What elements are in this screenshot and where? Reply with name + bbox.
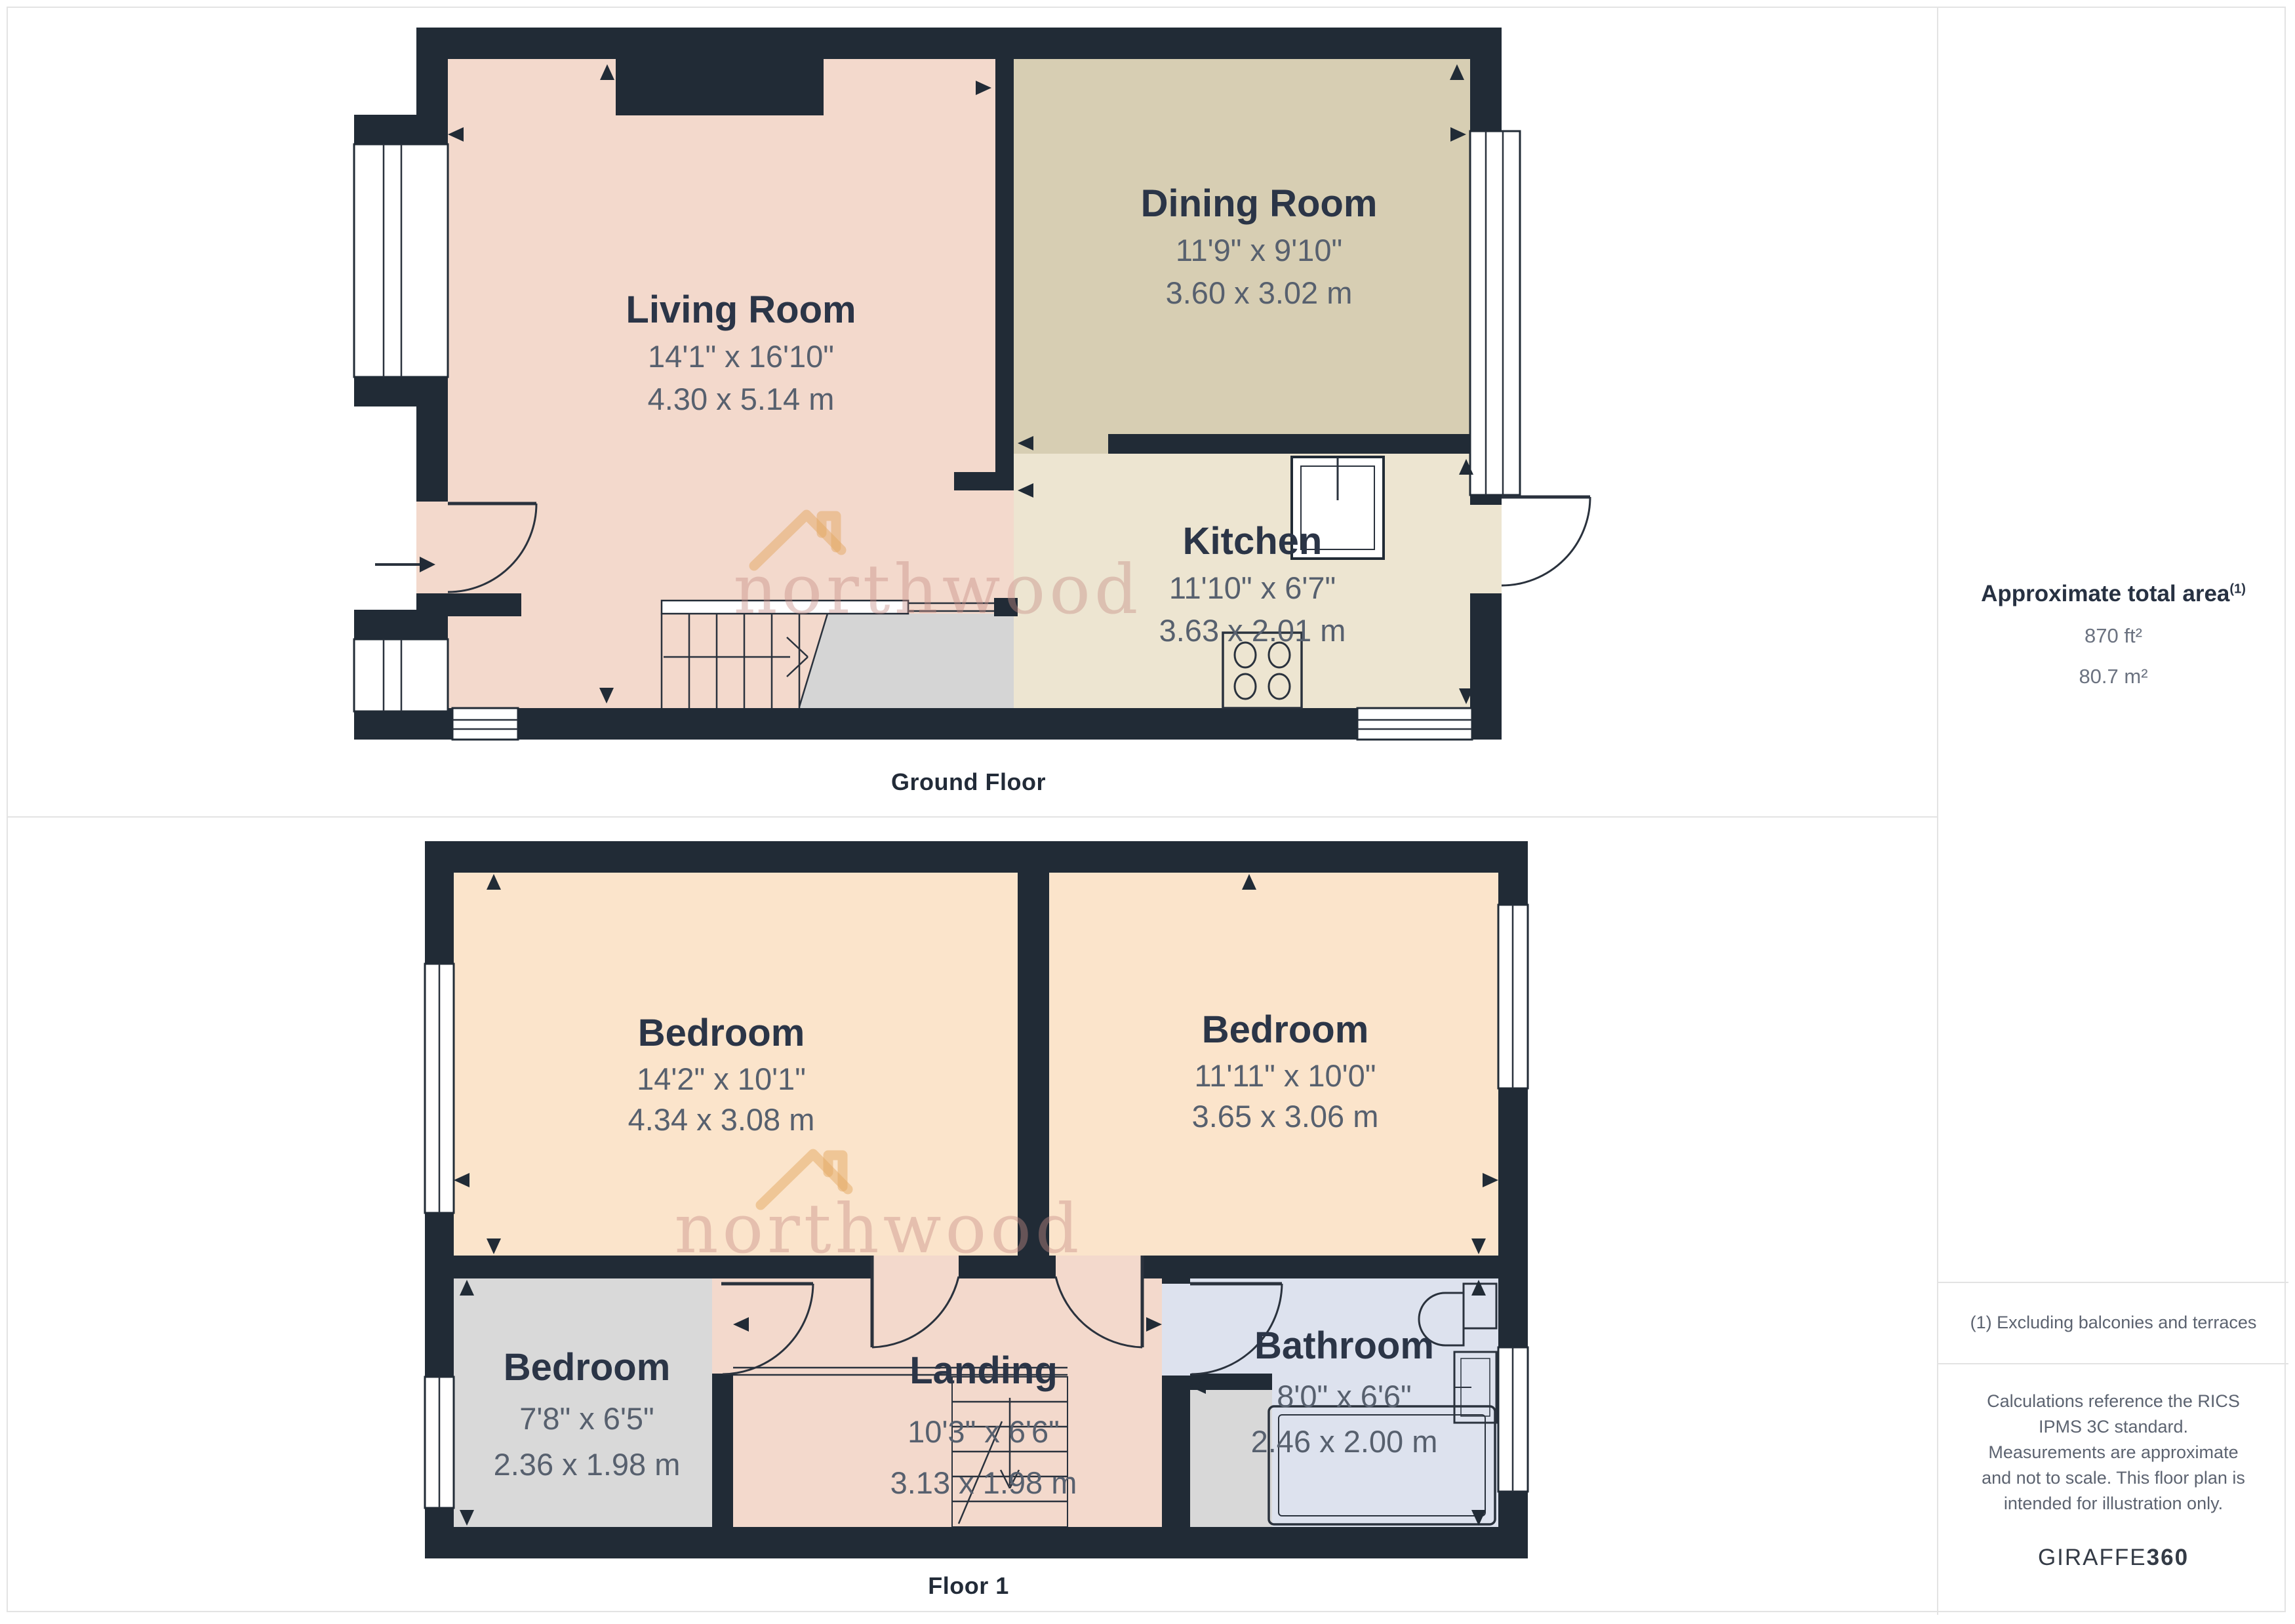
giraffe-logo-360: 360 [2147, 1545, 2189, 1570]
window-living-bottom [452, 708, 518, 740]
window-bedroom-left-lower [425, 1377, 454, 1508]
svg-text:7'8" x 6'5": 7'8" x 6'5" [519, 1401, 654, 1436]
svg-text:3.13 x 1.98 m: 3.13 x 1.98 m [890, 1465, 1077, 1500]
ground-floor-caption: Ground Floor [0, 768, 1937, 796]
window-dining-right [1470, 131, 1520, 495]
floor-1-plan: northwood Bedroom 14'2" x 10'1" 4.34 x 3… [0, 816, 1937, 1615]
svg-text:2.46 x 2.00 m: 2.46 x 2.00 m [1251, 1424, 1438, 1459]
svg-text:3.60 x 3.02 m: 3.60 x 3.02 m [1166, 275, 1353, 310]
room-label-bedroom-1: Bedroom [638, 1012, 805, 1054]
window-kitchen-bottom [1357, 708, 1472, 740]
total-area-title: Approximate total area(1) [1938, 581, 2288, 607]
disclaimer-text: Calculations reference the RICS IPMS 3C … [1978, 1389, 2249, 1516]
window-bathroom-right [1498, 1347, 1528, 1492]
window-living-left-upper [354, 144, 448, 377]
svg-text:14'1" x 16'10": 14'1" x 16'10" [648, 339, 834, 374]
window-bedroom-right [1498, 905, 1528, 1088]
svg-text:3.63 x 2.01 m: 3.63 x 2.01 m [1159, 613, 1346, 648]
sidebar-divider [1937, 7, 1938, 1615]
room-label-bedroom-2: Bedroom [1202, 1008, 1369, 1051]
floor-1-caption: Floor 1 [0, 1572, 1937, 1600]
room-label-bathroom: Bathroom [1254, 1324, 1434, 1367]
window-living-left-lower [354, 639, 448, 711]
svg-text:11'9" x 9'10": 11'9" x 9'10" [1176, 233, 1342, 267]
sidebar-divider-top [1938, 1282, 2288, 1283]
room-label-living-room: Living Room [626, 288, 856, 331]
svg-text:11'10" x 6'7": 11'10" x 6'7" [1169, 570, 1336, 605]
watermark-text: northwood [675, 1189, 1083, 1269]
svg-text:8'0" x 6'6": 8'0" x 6'6" [1277, 1379, 1412, 1414]
svg-text:3.65 x 3.06 m: 3.65 x 3.06 m [1192, 1099, 1379, 1134]
svg-text:11'11" x 10'0": 11'11" x 10'0" [1195, 1058, 1376, 1093]
svg-text:4.34 x 3.08 m: 4.34 x 3.08 m [628, 1102, 815, 1137]
giraffe360-logo: GIRAFFE360 [1938, 1545, 2288, 1571]
svg-text:2.36 x 1.98 m: 2.36 x 1.98 m [494, 1447, 681, 1482]
floorplan-page: northwood Living Room 14'1" x 16'10" 4.3… [0, 0, 2295, 1624]
sidebar-divider-bottom [1938, 1363, 2288, 1364]
room-label-landing: Landing [909, 1349, 1058, 1392]
svg-text:14'2" x 10'1": 14'2" x 10'1" [637, 1061, 806, 1096]
total-area-block: Approximate total area(1) 870 ft² 80.7 m… [1938, 581, 2288, 688]
total-area-imperial: 870 ft² [1938, 624, 2288, 648]
svg-text:4.30 x 5.14 m: 4.30 x 5.14 m [648, 382, 835, 416]
total-area-footnote-marker: (1) [2229, 582, 2245, 596]
room-label-bedroom-3: Bedroom [504, 1346, 671, 1389]
giraffe-logo-text: GIRAFFE [2038, 1545, 2147, 1570]
window-bedroom-left-upper [425, 964, 454, 1213]
ground-floor-plan: northwood Living Room 14'1" x 16'10" 4.3… [0, 0, 1937, 816]
area-footnote: (1) Excluding balconies and terraces [1938, 1313, 2288, 1333]
watermark-text: northwood [734, 549, 1142, 629]
svg-text:10'3" x 6'6": 10'3" x 6'6" [908, 1414, 1060, 1449]
back-door [1502, 497, 1590, 585]
total-area-metric: 80.7 m² [1938, 665, 2288, 688]
room-label-dining-room: Dining Room [1141, 182, 1378, 225]
room-label-kitchen: Kitchen [1183, 520, 1323, 563]
